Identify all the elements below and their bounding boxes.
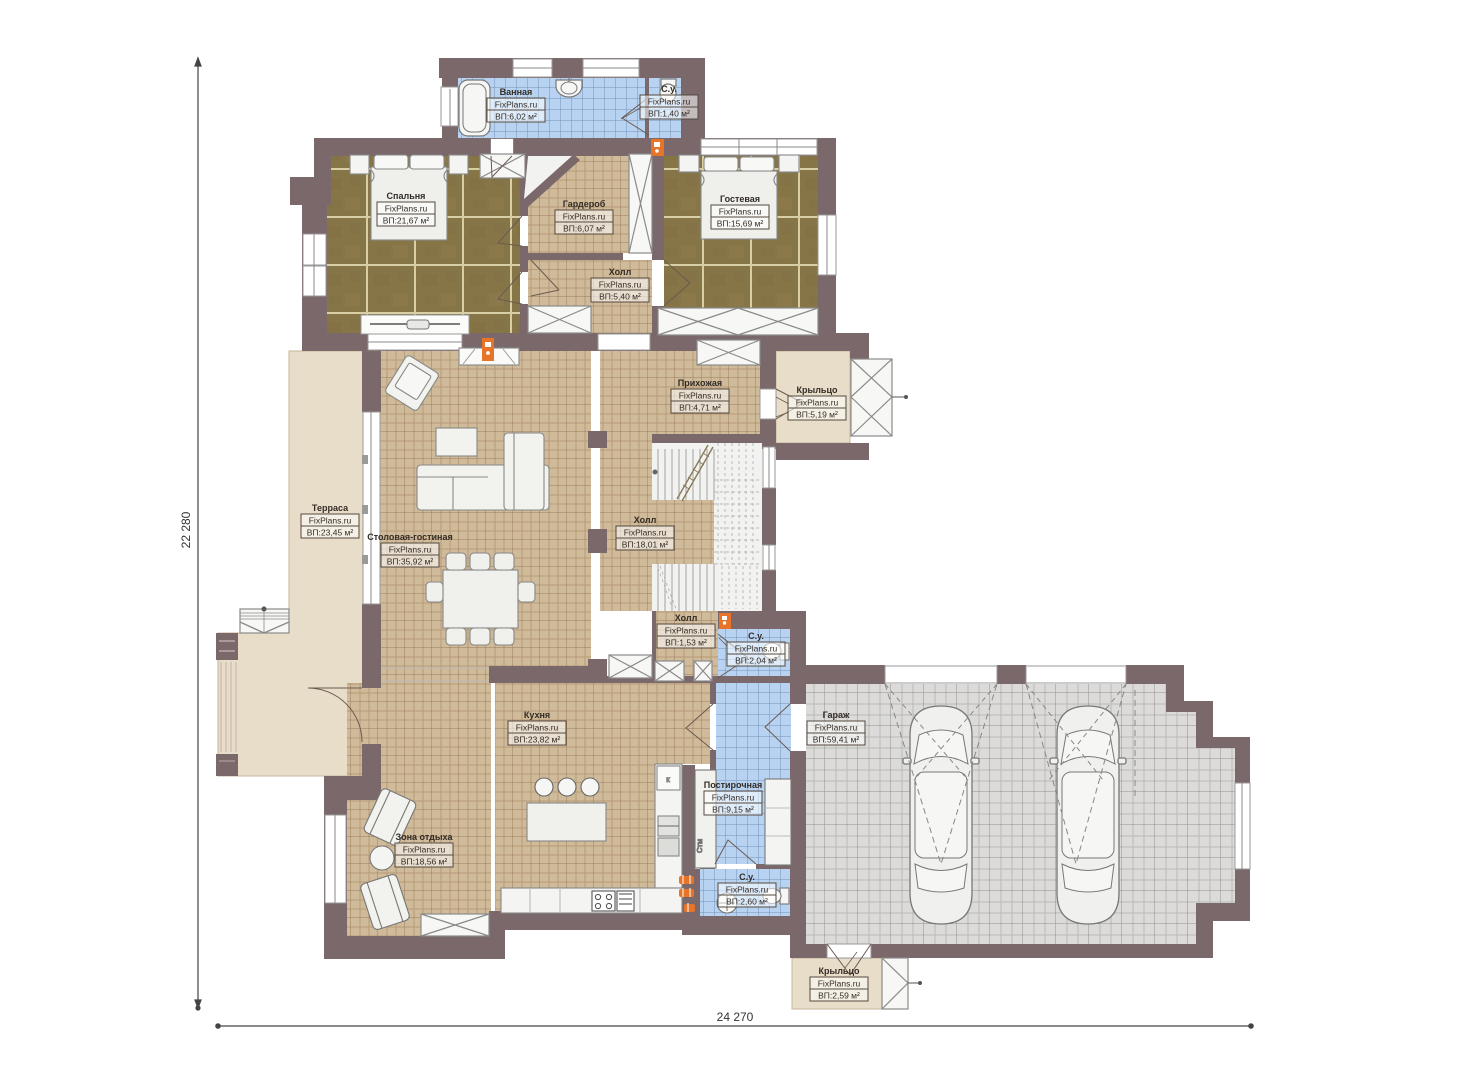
svg-text:FixPlans.ru: FixPlans.ru <box>495 100 538 110</box>
svg-text:FixPlans.ru: FixPlans.ru <box>712 793 755 803</box>
svg-text:ВП:5,40 м²: ВП:5,40 м² <box>599 292 641 302</box>
svg-text:FixPlans.ru: FixPlans.ru <box>389 545 432 555</box>
svg-text:ВП:4,71 м²: ВП:4,71 м² <box>679 403 721 413</box>
svg-text:FixPlans.ru: FixPlans.ru <box>599 280 642 290</box>
svg-text:FixPlans.ru: FixPlans.ru <box>403 845 446 855</box>
svg-text:FixPlans.ru: FixPlans.ru <box>818 979 861 989</box>
svg-text:FixPlans.ru: FixPlans.ru <box>665 626 708 636</box>
svg-text:Зона отдыха: Зона отдыха <box>395 832 453 842</box>
svg-text:Постирочная: Постирочная <box>704 780 762 790</box>
svg-text:Холл: Холл <box>609 267 632 277</box>
svg-text:Крыльцо: Крыльцо <box>819 966 860 976</box>
svg-text:ВП:9,15 м²: ВП:9,15 м² <box>712 805 754 815</box>
svg-text:ВП:5,19 м²: ВП:5,19 м² <box>796 410 838 420</box>
svg-text:ВП:23,45 м²: ВП:23,45 м² <box>307 528 354 538</box>
svg-text:ВП:15,69 м²: ВП:15,69 м² <box>717 219 764 229</box>
svg-text:22 280: 22 280 <box>179 511 193 548</box>
svg-text:Гараж: Гараж <box>823 710 850 720</box>
svg-text:ВП:1,53 м²: ВП:1,53 м² <box>665 638 707 648</box>
svg-text:FixPlans.ru: FixPlans.ru <box>726 885 769 895</box>
svg-text:ВП:2,04 м²: ВП:2,04 м² <box>735 656 777 666</box>
svg-text:ВП:59,41 м²: ВП:59,41 м² <box>813 735 860 745</box>
svg-text:ВП:23,82 м²: ВП:23,82 м² <box>514 735 561 745</box>
svg-text:Гостевая: Гостевая <box>720 194 760 204</box>
svg-text:Столовая-гостиная: Столовая-гостиная <box>367 532 452 542</box>
svg-text:Холл: Холл <box>675 613 698 623</box>
svg-text:FixPlans.ru: FixPlans.ru <box>735 644 778 654</box>
svg-text:FixPlans.ru: FixPlans.ru <box>516 723 559 733</box>
svg-text:Кухня: Кухня <box>524 710 550 720</box>
svg-text:FixPlans.ru: FixPlans.ru <box>385 204 428 214</box>
svg-text:Спальня: Спальня <box>387 191 426 201</box>
svg-text:ВП:1,40 м²: ВП:1,40 м² <box>648 109 690 119</box>
svg-text:FixPlans.ru: FixPlans.ru <box>679 391 722 401</box>
svg-text:FixPlans.ru: FixPlans.ru <box>648 97 691 107</box>
svg-text:ВП:6,02 м²: ВП:6,02 м² <box>495 112 537 122</box>
svg-text:Холл: Холл <box>634 515 657 525</box>
svg-text:ВП:2,60 м²: ВП:2,60 м² <box>726 897 768 907</box>
svg-text:ВП:2,59 м²: ВП:2,59 м² <box>818 991 860 1001</box>
svg-text:к: к <box>666 775 670 784</box>
svg-text:ВП:21,67 м²: ВП:21,67 м² <box>383 216 430 226</box>
svg-text:FixPlans.ru: FixPlans.ru <box>796 398 839 408</box>
svg-text:FixPlans.ru: FixPlans.ru <box>719 207 762 217</box>
svg-text:Терраса: Терраса <box>312 503 349 513</box>
svg-text:Прихожая: Прихожая <box>678 378 722 388</box>
svg-text:FixPlans.ru: FixPlans.ru <box>563 212 606 222</box>
svg-text:Ванная: Ванная <box>500 87 533 97</box>
svg-text:FixPlans.ru: FixPlans.ru <box>309 516 352 526</box>
svg-text:ВП:6,07 м²: ВП:6,07 м² <box>563 224 605 234</box>
svg-text:ВП:18,56 м²: ВП:18,56 м² <box>401 857 448 867</box>
svg-text:С.у.: С.у. <box>739 872 755 882</box>
svg-text:ВП:18,01 м²: ВП:18,01 м² <box>622 540 669 550</box>
svg-text:Стм: Стм <box>695 839 704 853</box>
svg-text:FixPlans.ru: FixPlans.ru <box>624 528 667 538</box>
svg-text:С.у.: С.у. <box>661 84 677 94</box>
svg-text:24 270: 24 270 <box>717 1010 754 1024</box>
svg-text:ВП:35,92 м²: ВП:35,92 м² <box>387 557 434 567</box>
svg-text:Крыльцо: Крыльцо <box>797 385 838 395</box>
svg-text:FixPlans.ru: FixPlans.ru <box>815 723 858 733</box>
svg-text:С.у.: С.у. <box>748 631 764 641</box>
svg-text:Гардероб: Гардероб <box>563 199 606 209</box>
